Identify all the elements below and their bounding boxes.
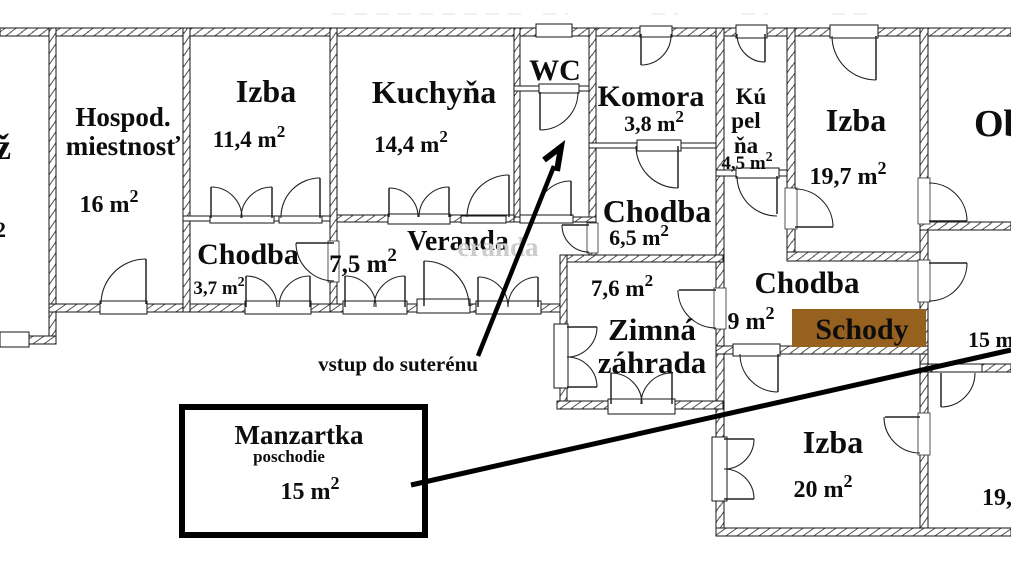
svg-text:WC: WC [529, 54, 581, 87]
svg-text:Izba: Izba [803, 424, 863, 460]
svg-text:Izba: Izba [826, 102, 886, 138]
svg-text:Obývačka: Obývačka [974, 103, 1011, 145]
svg-text:miestnosť: miestnosť [66, 131, 181, 161]
svg-text:Kú: Kú [736, 84, 767, 109]
svg-text:3,7 m2: 3,7 m2 [193, 275, 244, 299]
svg-text:záhrada: záhrada [598, 345, 707, 380]
svg-text:pel: pel [731, 108, 760, 133]
svg-text:6,5 m2: 6,5 m2 [609, 221, 669, 250]
svg-text:Izba: Izba [236, 73, 296, 109]
svg-text:2: 2 [0, 217, 6, 242]
svg-text:3,8 m2: 3,8 m2 [624, 107, 684, 136]
svg-text:Manzartka: Manzartka [235, 420, 364, 450]
svg-text:poschodie: poschodie [253, 447, 325, 466]
svg-text:11,4 m2: 11,4 m2 [213, 122, 285, 152]
svg-text:vstup do suterénu: vstup do suterénu [318, 352, 478, 376]
svg-text:Garáž: Garáž [0, 127, 11, 167]
svg-text:Komora: Komora [598, 80, 705, 113]
svg-text:Chodba: Chodba [754, 265, 860, 300]
svg-text:15 m2: 15 m2 [968, 322, 1011, 352]
svg-text:Zimná: Zimná [608, 312, 696, 347]
svg-text:Schody: Schody [815, 313, 908, 346]
svg-text:Chodba: Chodba [603, 193, 712, 229]
svg-text:7,6 m2: 7,6 m2 [591, 271, 653, 301]
svg-text:Hospod.: Hospod. [75, 102, 170, 132]
svg-text:14,4 m2: 14,4 m2 [374, 127, 448, 157]
svg-text:Chodba: Chodba [197, 238, 299, 271]
svg-text:Kuchyňa: Kuchyňa [372, 74, 496, 110]
svg-text:4,5 m2: 4,5 m2 [721, 150, 772, 174]
